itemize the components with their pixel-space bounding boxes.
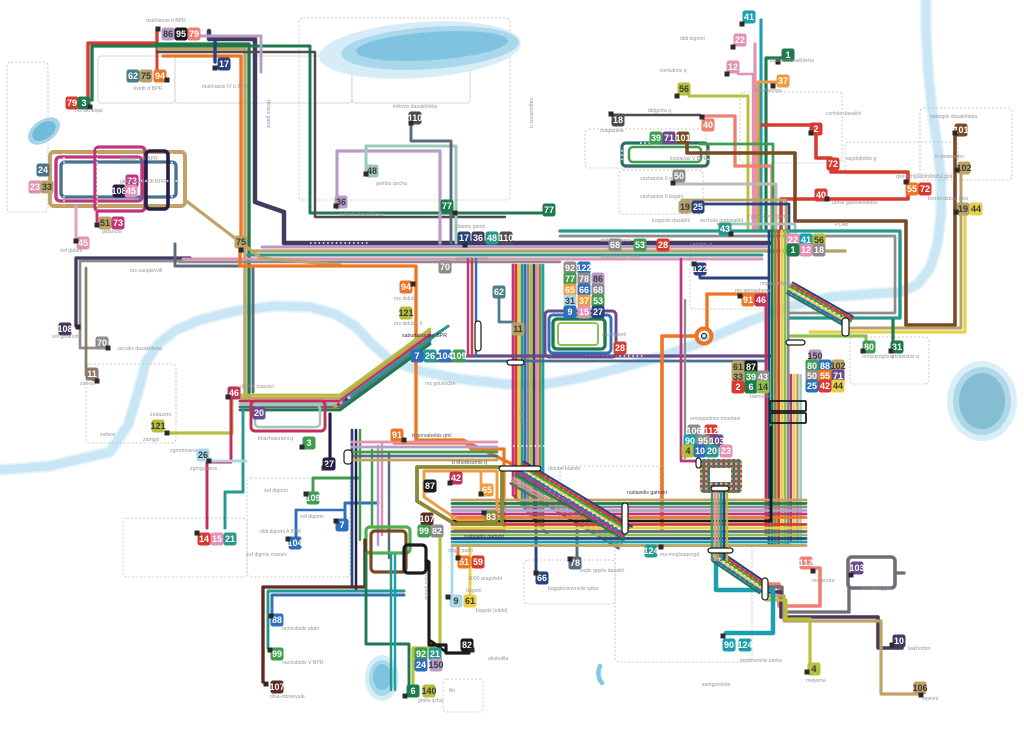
svg-text:44: 44 [833, 381, 843, 391]
svg-text:20: 20 [707, 446, 717, 456]
svg-text:saburtalos gor BPR: saburtalos gor BPR [402, 333, 447, 339]
svg-text:72: 72 [828, 159, 838, 169]
svg-text:zgmgovana: zgmgovana [190, 466, 217, 472]
svg-text:91: 91 [743, 295, 753, 305]
svg-text:25: 25 [693, 202, 703, 212]
svg-text:vazhaobis II bagiro: vazhaobis II bagiro [640, 194, 684, 200]
svg-text:18: 18 [814, 245, 824, 255]
svg-text:108: 108 [57, 324, 72, 334]
svg-text:norioglis dasakhleba: norioglis dasakhleba [930, 114, 977, 120]
svg-text:23: 23 [30, 182, 40, 192]
svg-text:46: 46 [756, 295, 766, 305]
svg-text:6: 6 [748, 382, 753, 392]
svg-text:107: 107 [419, 514, 434, 524]
svg-text:vake: vake [430, 524, 441, 530]
svg-text:2: 2 [735, 382, 740, 392]
svg-text:70: 70 [440, 262, 450, 272]
svg-text:1: 1 [790, 245, 795, 255]
svg-text:7: 7 [414, 351, 419, 361]
svg-text:19: 19 [680, 202, 690, 212]
svg-text:3: 3 [306, 438, 311, 448]
svg-text:124: 124 [643, 546, 658, 556]
svg-text:27: 27 [593, 307, 603, 317]
svg-text:lotkinis dasakhleba: lotkinis dasakhleba [770, 58, 814, 64]
svg-text:21: 21 [225, 534, 235, 544]
svg-text:sadgtris moedani: sadgtris moedani [600, 254, 640, 260]
svg-text:tbilisis gamz: tbilisis gamz [265, 100, 271, 129]
svg-text:65: 65 [565, 285, 575, 295]
svg-text:91: 91 [392, 430, 402, 440]
svg-text:94: 94 [155, 71, 165, 81]
svg-text:sof gldani: sof gldani [60, 248, 82, 254]
svg-text:53: 53 [593, 296, 603, 306]
svg-text:21: 21 [430, 649, 440, 659]
svg-text:2: 2 [813, 124, 818, 134]
svg-text:95: 95 [176, 29, 186, 39]
svg-text:zahesi: zahesi [100, 432, 115, 438]
svg-text:40: 40 [703, 120, 713, 130]
svg-text:nuckubidis plato: nuckubidis plato [282, 626, 319, 632]
svg-text:75: 75 [236, 237, 246, 247]
svg-text:50: 50 [674, 171, 684, 181]
svg-text:saguramos q: saguramos q [528, 98, 534, 128]
svg-text:didi digomi A BPR: didi digomi A BPR [260, 529, 301, 535]
svg-text:62: 62 [494, 287, 504, 297]
svg-text:12: 12 [728, 62, 738, 72]
svg-text:avcalis dasakhleba: avcalis dasakhleba [118, 346, 162, 352]
svg-text:gldanis qucha: gldanis qucha [456, 256, 488, 262]
svg-text:d utodengbo: d utodengbo [935, 154, 964, 160]
svg-text:sof digomi: sof digomi [264, 488, 288, 494]
svg-text:79: 79 [67, 98, 77, 108]
svg-text:kostavas V BPR: kostavas V BPR [670, 156, 708, 162]
svg-text:sof digomi: sof digomi [300, 514, 324, 520]
svg-text:rustavelis gamziri: rustavelis gamziri [464, 534, 504, 540]
svg-text:124: 124 [737, 640, 752, 650]
svg-text:110: 110 [499, 233, 514, 243]
svg-text:61: 61 [465, 596, 475, 606]
svg-text:ormsjqsdmis moedani: ormsjqsdmis moedani [690, 416, 740, 422]
svg-text:103: 103 [849, 563, 864, 573]
svg-text:140: 140 [421, 686, 436, 696]
svg-text:121: 121 [398, 308, 413, 318]
svg-text:rustavelis gamziri: rustavelis gamziri [627, 490, 667, 496]
svg-text:akvledila: akvledila [488, 656, 508, 662]
svg-text:gldanis VIII BPR: gldanis VIII BPR [120, 156, 158, 162]
svg-text:zgmrtovana: zgmrtovana [170, 448, 197, 454]
svg-text:avchala gadasakhl: avchala gadasakhl [700, 218, 743, 224]
svg-text:66: 66 [579, 285, 589, 295]
svg-text:7: 7 [339, 520, 344, 530]
svg-text:zedazeni: zedazeni [150, 412, 171, 418]
svg-text:mukhianis d BPR: mukhianis d BPR [146, 18, 186, 24]
svg-text:qrtsbsisbis q: qrtsbsisbis q [890, 354, 919, 360]
svg-text:sof digmis massiv: sof digmis massiv [246, 552, 287, 558]
svg-text:83: 83 [486, 512, 496, 522]
svg-text:72: 72 [920, 184, 930, 194]
svg-text:khachaturiani q: khachaturiani q [258, 436, 293, 442]
svg-text:87: 87 [425, 481, 435, 491]
svg-text:24: 24 [416, 660, 426, 670]
svg-text:10: 10 [695, 446, 705, 456]
svg-text:20: 20 [254, 408, 264, 418]
svg-text:canobis g: canobis g [690, 242, 712, 248]
svg-text:chukhureti: chukhureti [602, 332, 626, 338]
svg-text:31: 31 [565, 296, 575, 306]
svg-text:25: 25 [807, 381, 817, 391]
svg-text:mukhianis IV b BPR: mukhianis IV b BPR [202, 84, 248, 90]
svg-text:gmlis qzba: gmlis qzba [418, 698, 443, 704]
svg-text:miritmsnelis parka: miritmsnelis parka [740, 658, 782, 664]
svg-text:3000 aragvlebi: 3000 aragvlebi [468, 576, 502, 582]
svg-text:9: 9 [567, 307, 572, 317]
svg-text:didgorta q: didgorta q [648, 108, 671, 114]
svg-text:44: 44 [971, 204, 981, 214]
svg-text:bvmni dsbag gzis: bvmni dsbag gzis [928, 196, 968, 202]
svg-text:23: 23 [721, 446, 731, 456]
svg-text:68: 68 [593, 285, 603, 295]
svg-text:104: 104 [437, 351, 452, 361]
svg-text:gldanula: gldanula [102, 229, 122, 235]
svg-text:62: 62 [128, 71, 138, 81]
svg-text:10: 10 [894, 636, 904, 646]
svg-text:b gorsabebis qml: b gorsabebis qml [412, 433, 452, 439]
svg-text:26: 26 [425, 351, 435, 361]
svg-text:4: 4 [811, 664, 816, 674]
svg-text:digmis massivi: digmis massivi [240, 384, 274, 390]
svg-text:vagis parki: vagis parki [448, 548, 473, 554]
svg-text:33: 33 [42, 182, 52, 192]
svg-text:90: 90 [724, 640, 734, 650]
svg-text:ms agmashena: ms agmashena [735, 288, 771, 294]
svg-text:42: 42 [820, 381, 830, 391]
svg-text:lotkinis dasakhleba: lotkinis dasakhleba [340, 212, 384, 218]
svg-text:37: 37 [778, 76, 788, 86]
svg-text:9: 9 [453, 596, 458, 606]
svg-text:86: 86 [593, 274, 603, 284]
svg-text:cxrtvlis dasakhl: cxrtvlis dasakhl [826, 111, 861, 117]
svg-text:didube bakoiri: didube bakoiri [548, 466, 580, 472]
svg-text:lilo: lilo [449, 688, 455, 694]
svg-text:17: 17 [219, 59, 229, 69]
svg-text:ivertubnis q: ivertubnis q [660, 68, 687, 74]
svg-text:108: 108 [111, 186, 126, 196]
svg-text:bagebi: bagebi [466, 588, 482, 594]
svg-text:ms didube: ms didube [394, 296, 418, 302]
svg-text:zamgsi: zamgsi [143, 437, 159, 443]
svg-text:15: 15 [212, 534, 222, 544]
svg-text:15: 15 [579, 307, 589, 317]
svg-text:73: 73 [113, 218, 123, 228]
svg-text:4: 4 [685, 446, 690, 456]
svg-text:iagsbqlebis g: iagsbqlebis g [846, 156, 876, 162]
svg-text:18: 18 [613, 115, 623, 125]
svg-text:107: 107 [269, 682, 284, 692]
svg-text:75: 75 [141, 71, 151, 81]
svg-text:disa-otbnwyala: disa-otbnwyala [270, 694, 305, 700]
svg-text:28: 28 [615, 343, 625, 353]
svg-text:48: 48 [487, 233, 497, 243]
svg-text:zahesi: zahesi [80, 381, 95, 387]
svg-text:bagqbmsnvnelis qzba: bagqbmsnvnelis qzba [548, 586, 598, 592]
svg-text:22: 22 [735, 35, 745, 45]
svg-text:14: 14 [199, 534, 209, 544]
svg-text:94: 94 [401, 282, 411, 292]
svg-text:112: 112 [799, 558, 814, 568]
svg-text:gldanis gamz: gldanis gamz [455, 224, 486, 230]
svg-text:ms akhalqal: ms akhalqal [75, 108, 103, 114]
svg-text:78: 78 [579, 274, 589, 284]
svg-text:nuckubidis V BPR: nuckubidis V BPR [282, 660, 324, 666]
svg-text:12: 12 [801, 245, 811, 255]
svg-text:mtgrsibsdgbis j: mtgrsibsdgbis j [760, 281, 795, 287]
svg-text:qvevi mglviotmibsba gza: qvevi mglviotmibsba gza [896, 174, 953, 180]
svg-text:wqlis gqslis dasakh: wqlis gqslis dasakh [580, 568, 625, 574]
svg-text:45: 45 [126, 186, 136, 196]
svg-text:11: 11 [513, 324, 523, 334]
svg-text:99: 99 [419, 526, 429, 536]
svg-text:51: 51 [100, 218, 110, 228]
svg-text:59: 59 [473, 557, 483, 567]
svg-text:b khorbxsmis q: b khorbxsmis q [452, 460, 487, 466]
svg-text:ms gotsiridze: ms gotsiridze [425, 381, 456, 387]
svg-text:6: 6 [410, 686, 415, 696]
svg-text:17: 17 [459, 233, 469, 243]
svg-text:77: 77 [442, 201, 452, 211]
svg-text:77: 77 [544, 205, 554, 215]
svg-text:tseretlis gamziri: tseretlis gamziri [518, 390, 524, 426]
svg-text:mingezira: mingezira [812, 578, 835, 584]
svg-text:150: 150 [428, 660, 443, 670]
svg-text:101: 101 [675, 133, 690, 143]
svg-text:gldanis VII-VIII BPR: gldanis VII-VIII BPR [120, 179, 166, 185]
svg-text:ms sarajishvili: ms sarajishvili [130, 268, 162, 274]
svg-text:bagebi (elebi): bagebi (elebi) [476, 608, 508, 614]
svg-text:86: 86 [163, 29, 173, 39]
svg-text:didtglis gamz: didtglis gamz [600, 238, 631, 244]
svg-text:56: 56 [679, 84, 689, 94]
svg-text:53: 53 [635, 240, 645, 250]
svg-text:92: 92 [565, 263, 575, 273]
svg-text:77: 77 [565, 274, 575, 284]
svg-text:kvetb d BPR: kvetb d BPR [134, 86, 163, 92]
svg-text:ms mnplsaqvegd: ms mnplsaqvegd [660, 552, 699, 558]
svg-text:vasakhzggla: vasakhzggla [862, 586, 891, 592]
svg-text:mejvena: mejvena [806, 678, 826, 684]
svg-text:magaziela: magaziela [600, 128, 624, 134]
svg-text:24: 24 [38, 165, 48, 175]
svg-text:j gagrsbwlis gamz: j gagrsbwlis gamz [747, 214, 790, 220]
svg-text:3: 3 [81, 98, 86, 108]
svg-text:39: 39 [651, 133, 661, 143]
svg-text:45: 45 [78, 238, 88, 248]
svg-text:106: 106 [912, 683, 927, 693]
svg-text:PLAB: PLAB [835, 222, 849, 228]
svg-text:28: 28 [658, 240, 668, 250]
svg-text:sof gldanshi: sof gldanshi [52, 334, 80, 340]
svg-text:gelrbis qucha: gelrbis qucha [376, 181, 407, 187]
svg-text:14: 14 [758, 382, 768, 392]
svg-text:109: 109 [451, 351, 466, 361]
svg-text:121: 121 [150, 421, 165, 431]
svg-text:92: 92 [416, 649, 426, 659]
svg-text:71: 71 [664, 133, 674, 143]
svg-text:55: 55 [907, 184, 917, 194]
svg-text:vazhaobis II q: vazhaobis II q [640, 176, 672, 182]
svg-text:ubnis gansakhlebuli: ubnis gansakhlebuli [832, 200, 878, 206]
svg-text:vejevni: vejevni [922, 696, 938, 702]
svg-text:kutgsxis dasakhl: kutgsxis dasakhl [652, 218, 690, 224]
svg-text:36: 36 [473, 233, 483, 243]
svg-text:ms didube II: ms didube II [394, 321, 422, 327]
svg-text:11: 11 [87, 369, 97, 379]
svg-text:kojris qucha: kojris qucha [423, 572, 429, 600]
svg-text:41: 41 [744, 12, 754, 22]
svg-text:didi digomi: didi digomi [680, 36, 705, 42]
svg-text:samgorelebi: samgorelebi [702, 682, 730, 688]
svg-text:99: 99 [272, 649, 282, 659]
svg-text:avtshiornga: avtshiornga [755, 88, 782, 94]
svg-text:79: 79 [189, 29, 199, 39]
svg-text:barnovის q: barnovის q [750, 393, 776, 400]
svg-text:19: 19 [958, 204, 968, 214]
svg-text:kakhorbni: kakhorbni [908, 646, 931, 652]
svg-text:mtkvris dasakhleba: mtkvris dasakhleba [393, 104, 438, 110]
svg-text:37: 37 [579, 296, 589, 306]
svg-text:122: 122 [576, 263, 591, 273]
